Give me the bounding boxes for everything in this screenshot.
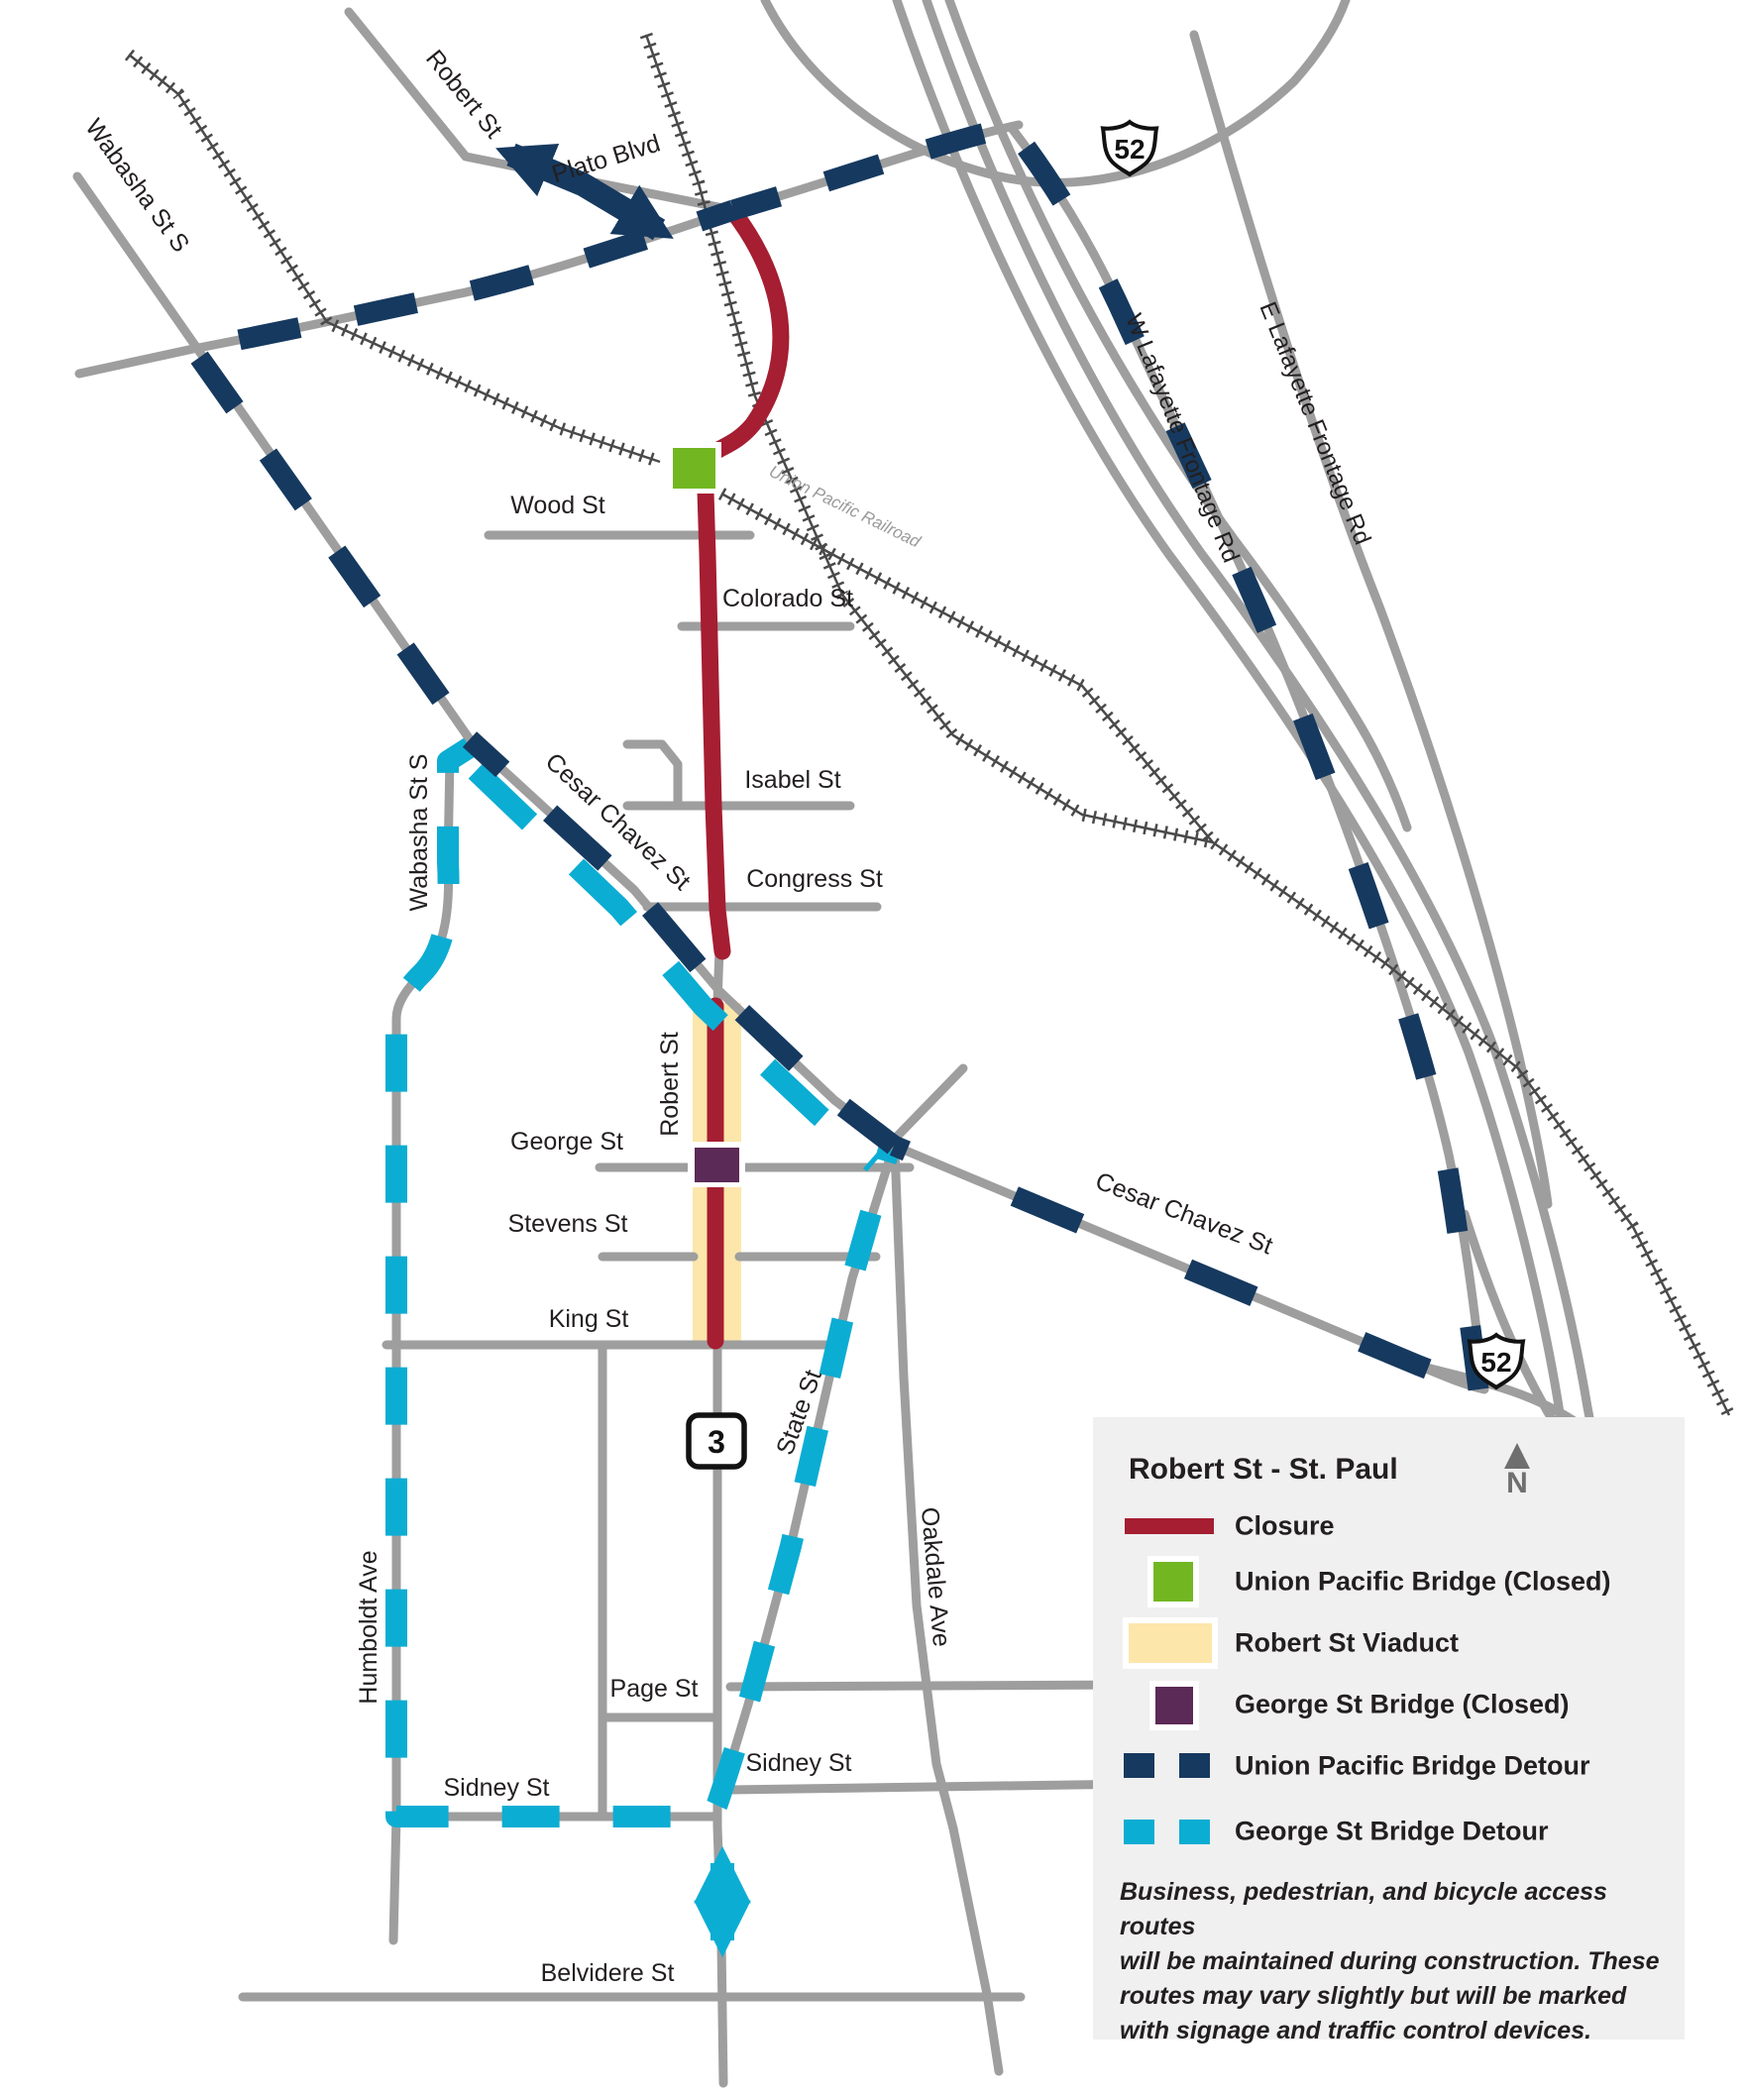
legend-panel: Robert St - St. Paul N Closure Union Pac… [1093, 1417, 1685, 2040]
closure-swatch [1125, 1518, 1214, 1534]
robert-st-label: Robert St [420, 45, 507, 144]
sidney-st-label: Sidney St [745, 1749, 851, 1777]
george-st-label: George St [510, 1128, 623, 1156]
union-pacific-bridge-closed [666, 442, 721, 494]
north-arrow-icon [1504, 1443, 1530, 1469]
page: { "map": { "region_title": "Robert St - … [0, 0, 1747, 2100]
road-oakdale-stub [894, 1068, 963, 1140]
road-isabel-stub [627, 744, 678, 806]
legend-item-up-bridge: Union Pacific Bridge (Closed) [1235, 1567, 1611, 1598]
wood-st-label: Wood St [510, 492, 604, 519]
isabel-st-label: Isabel St [744, 766, 840, 794]
wabasha-st-s-label: Wabasha St S [79, 114, 194, 258]
sidney-st-label: Sidney St [443, 1774, 549, 1802]
george-st-bridge-closed [688, 1142, 745, 1187]
road-hwy52-ramp-top [765, 0, 1346, 182]
page-st-label: Page St [610, 1675, 699, 1703]
stevens-st-label: Stevens St [508, 1210, 628, 1238]
humboldt-ave-label: Humboldt Ave [355, 1550, 382, 1704]
note-line-4: with signage and traffic control devices… [1120, 2014, 1675, 2048]
george-st-detour-swatch [1124, 1820, 1233, 1845]
road-sidney-st-east [730, 1784, 1140, 1790]
union-pacific-bridge-swatch [1147, 1556, 1199, 1607]
note-line-1: Business, pedestrian, and bicycle access… [1120, 1875, 1675, 1944]
george-st-bridge-swatch [1149, 1681, 1199, 1730]
legend-note: Business, pedestrian, and bicycle access… [1120, 1875, 1675, 2048]
robert-st-label: Robert St [656, 1032, 684, 1137]
plato-blvd-label: Plato Blvd [549, 130, 664, 189]
shield-number: 52 [1480, 1347, 1511, 1378]
king-st-label: King St [549, 1305, 629, 1333]
shield-number: 3 [708, 1424, 725, 1460]
legend-title: Robert St - St. Paul [1129, 1453, 1398, 1487]
mn-route-3-shield: 3 [689, 1415, 744, 1467]
legend-item-closure: Closure [1235, 1511, 1335, 1542]
road-hwy52-strand1 [897, 0, 1595, 1561]
colorado-st-label: Colorado St [722, 585, 853, 612]
road-page-st-east [730, 1685, 1135, 1687]
legend-item-george-detour: George St Bridge Detour [1235, 1817, 1549, 1847]
legend-item-up-detour: Union Pacific Bridge Detour [1235, 1751, 1590, 1782]
road-w-lafayette-frontage [1011, 127, 1482, 1387]
note-line-2: will be maintained during construction. … [1120, 1944, 1675, 1979]
note-line-3: routes may vary slightly but will be mar… [1120, 1979, 1675, 2014]
union-pacific-railroad [129, 35, 1729, 1415]
cesar-chavez-st-label: Cesar Chavez St [1092, 1167, 1276, 1261]
union-pacific-detour-swatch [1124, 1753, 1233, 1779]
shield-number: 52 [1114, 134, 1145, 165]
north-arrow: N [1497, 1443, 1537, 1498]
belvidere-st-label: Belvidere St [541, 1959, 675, 1987]
legend-item-viaduct: Robert St Viaduct [1235, 1628, 1459, 1659]
road-robert-st-top [349, 12, 733, 210]
road-wabasha-humboldt [393, 739, 470, 1940]
union-pacific-railroad-label: Union Pacific Railroad [766, 462, 924, 552]
wabasha-st-s-label: Wabasha St S [405, 754, 433, 912]
e-lafayette-frontage-rd-label: E Lafayette Frontage Rd [1254, 298, 1375, 549]
north-letter: N [1497, 1469, 1537, 1498]
railroad-line-1 [129, 55, 1729, 1415]
viaduct-swatch [1123, 1617, 1218, 1669]
legend-item-george-bridge: George St Bridge (Closed) [1235, 1690, 1570, 1720]
congress-st-label: Congress St [746, 865, 883, 893]
